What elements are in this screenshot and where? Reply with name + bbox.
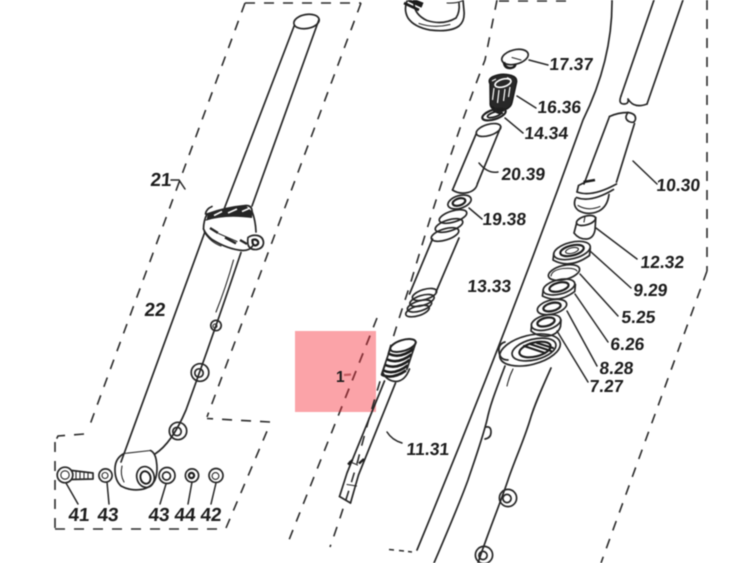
svg-text:6.26: 6.26 xyxy=(610,334,646,354)
svg-text:41: 41 xyxy=(68,505,91,526)
svg-text:16.36: 16.36 xyxy=(537,97,583,117)
svg-text:17.37: 17.37 xyxy=(549,54,595,74)
svg-text:11.31: 11.31 xyxy=(406,439,451,459)
svg-text:43: 43 xyxy=(97,505,120,526)
svg-text:19.38: 19.38 xyxy=(482,209,528,229)
svg-text:42: 42 xyxy=(200,505,223,526)
svg-text:14.34: 14.34 xyxy=(524,123,570,143)
svg-text:12.32: 12.32 xyxy=(640,252,686,272)
svg-text:9.29: 9.29 xyxy=(633,280,669,300)
svg-text:22: 22 xyxy=(144,300,167,321)
svg-text:13.33: 13.33 xyxy=(467,276,513,296)
svg-text:1: 1 xyxy=(336,369,345,386)
svg-text:10.30: 10.30 xyxy=(656,175,702,195)
svg-text:20.39: 20.39 xyxy=(501,164,547,184)
svg-text:7.27: 7.27 xyxy=(589,376,625,396)
svg-text:8.28: 8.28 xyxy=(599,358,635,378)
svg-text:43: 43 xyxy=(148,505,171,526)
svg-text:21: 21 xyxy=(150,170,173,191)
svg-text:5.25: 5.25 xyxy=(621,307,657,327)
svg-text:44: 44 xyxy=(174,505,197,526)
